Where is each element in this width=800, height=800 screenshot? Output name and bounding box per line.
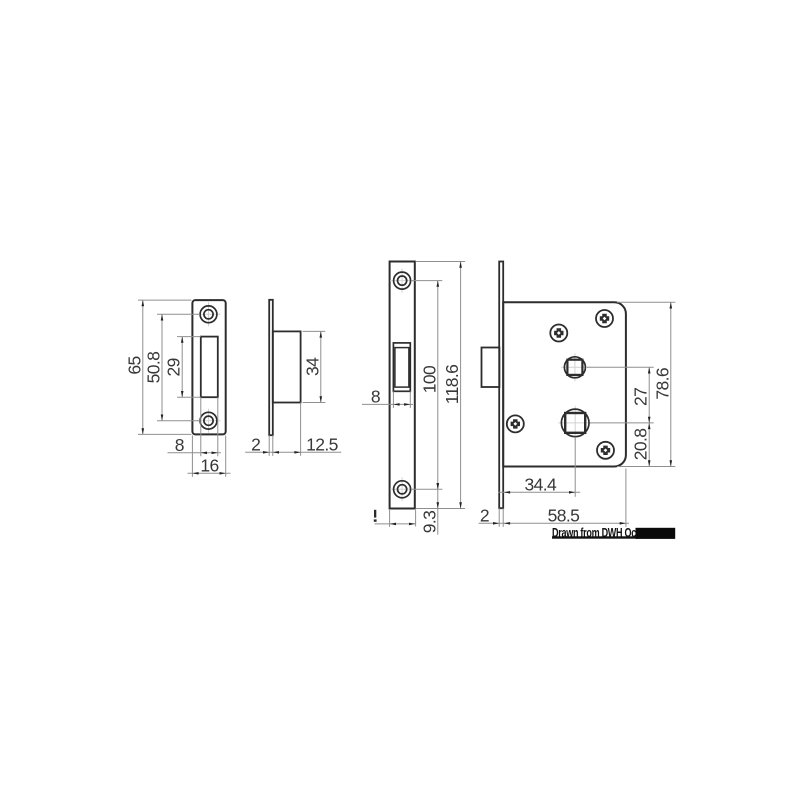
svg-text:58.5: 58.5 xyxy=(548,505,580,525)
svg-text:34: 34 xyxy=(302,357,322,376)
svg-text:9.3: 9.3 xyxy=(419,511,439,534)
svg-text:2: 2 xyxy=(251,434,260,454)
svg-text:20.8: 20.8 xyxy=(631,429,651,461)
svg-text:29: 29 xyxy=(164,358,184,376)
svg-text:8: 8 xyxy=(371,386,380,406)
svg-text:78.6: 78.6 xyxy=(652,368,672,400)
svg-text:27: 27 xyxy=(631,388,651,406)
svg-text:12.5: 12.5 xyxy=(306,434,338,454)
svg-text:34.4: 34.4 xyxy=(524,474,557,494)
svg-text:2: 2 xyxy=(480,505,489,525)
svg-text:50.8: 50.8 xyxy=(144,352,164,384)
svg-text:65: 65 xyxy=(124,356,144,374)
svg-text:8: 8 xyxy=(175,435,184,455)
svg-text:16: 16 xyxy=(200,455,218,475)
svg-text:118.6: 118.6 xyxy=(442,365,462,405)
svg-text:100: 100 xyxy=(419,365,439,393)
